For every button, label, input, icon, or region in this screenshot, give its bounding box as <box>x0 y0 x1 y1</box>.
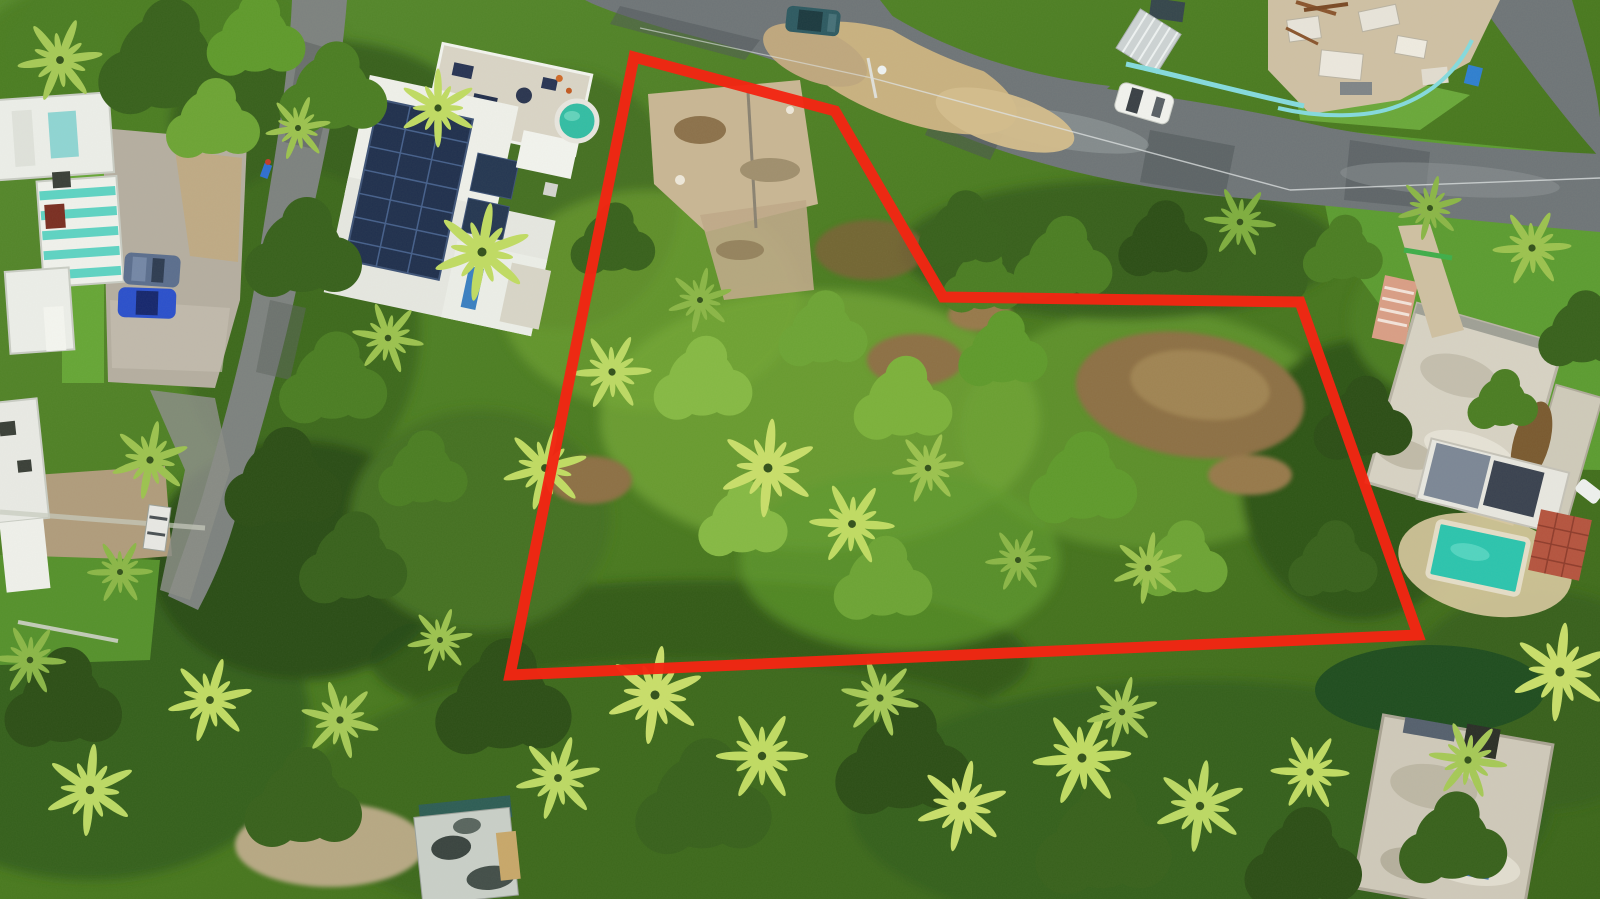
photo-grain <box>0 0 1600 899</box>
aerial-photo <box>0 0 1600 899</box>
